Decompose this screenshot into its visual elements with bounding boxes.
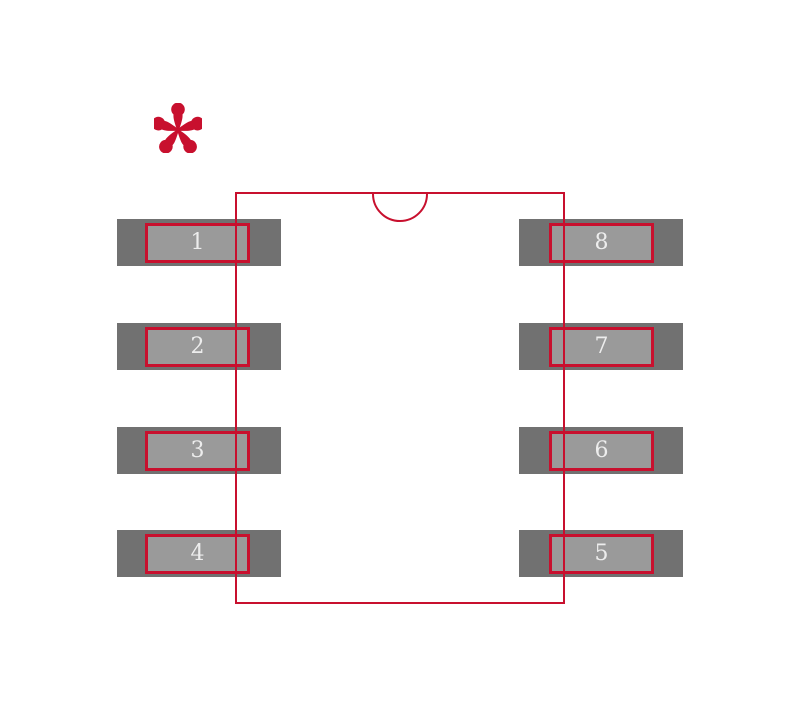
pad-4-outline: 4 <box>145 534 250 574</box>
pad-6-outline: 6 <box>549 431 654 471</box>
pad-1-number: 1 <box>191 232 205 254</box>
pad-5-number: 5 <box>595 543 609 565</box>
pad-3-number: 3 <box>191 440 205 462</box>
pad-7-outline: 7 <box>549 327 654 367</box>
pad-1-outline: 1 <box>145 223 250 263</box>
pad-3: 3 <box>117 427 281 474</box>
pad-5-outline: 5 <box>549 534 654 574</box>
pad-7-number: 7 <box>595 336 609 358</box>
pad-8-outline: 8 <box>549 223 654 263</box>
package-body-outline <box>235 192 565 604</box>
pad-7: 7 <box>519 323 683 370</box>
pad-5: 5 <box>519 530 683 577</box>
pad-4-number: 4 <box>191 543 205 565</box>
pad-1: 1 <box>117 219 281 266</box>
pad-6: 6 <box>519 427 683 474</box>
pin1-asterisk-icon <box>154 103 202 153</box>
pad-4: 4 <box>117 530 281 577</box>
pad-8-number: 8 <box>595 232 609 254</box>
pad-6-number: 6 <box>595 440 609 462</box>
pad-2-number: 2 <box>191 336 205 358</box>
pad-3-outline: 3 <box>145 431 250 471</box>
pin1-notch-icon <box>372 193 428 225</box>
footprint-diagram: 1 2 3 4 8 7 6 5 <box>0 0 800 707</box>
pad-2-outline: 2 <box>145 327 250 367</box>
pad-8: 8 <box>519 219 683 266</box>
pad-2: 2 <box>117 323 281 370</box>
